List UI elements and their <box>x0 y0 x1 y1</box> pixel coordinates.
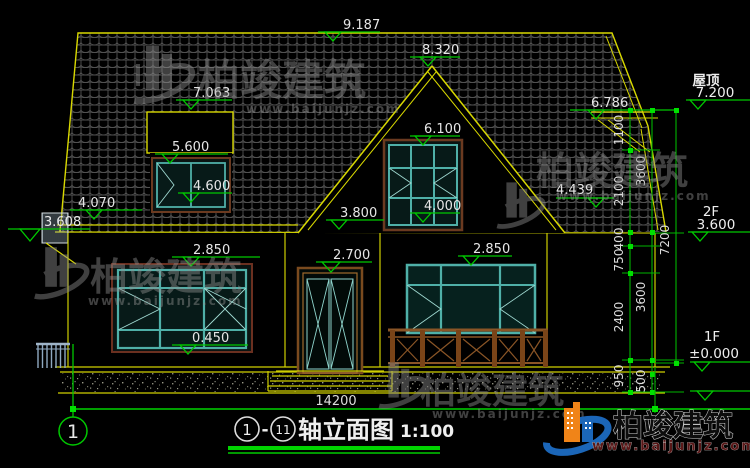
elevation-value: 3.608 <box>44 215 81 230</box>
dim-right-middle-1: 3600 <box>634 282 648 313</box>
level-floor2: 2F 3.600 <box>688 204 750 241</box>
dim-right-middle-2: 500 <box>634 370 648 393</box>
level-roof: 屋顶 7.200 <box>686 73 750 109</box>
elevation-value: 2.850 <box>473 242 510 257</box>
elevation-marker-right-window-top: 2.850 <box>458 242 512 265</box>
level-base <box>690 391 750 400</box>
watermark-brand: 柏竣建筑 <box>420 371 564 412</box>
title-separator: - <box>261 420 268 440</box>
cad-elevation-drawing: 9.187 8.320 7.063 5.600 4.600 4.070 <box>0 0 750 468</box>
watermark-brand: 柏竣建筑 <box>90 255 242 299</box>
watermark-brand: 柏竣建筑 <box>198 56 366 105</box>
watermark-url: www.baijunjz.com <box>88 294 243 308</box>
watermark-brand: 柏竣建筑 <box>536 149 688 193</box>
elevation-value: 9.187 <box>343 18 380 33</box>
left-stair-railing <box>36 344 70 368</box>
drawing-canvas: 9.187 8.320 7.063 5.600 4.600 4.070 <box>0 0 750 468</box>
elevation-value: 4.600 <box>193 179 230 194</box>
overall-width-dim: 14200 <box>315 394 356 409</box>
level-markers: 屋顶 7.200 2F 3.600 1F ±0.000 <box>686 73 750 400</box>
elevation-value: 8.320 <box>422 43 459 58</box>
watermark-url: www.baijunjz.com <box>432 407 587 421</box>
dim-right-inner-4: 2400 <box>612 302 626 333</box>
level-value: 7.200 <box>696 85 735 101</box>
watermark-bottom: 柏竣建筑 www.baijunjz.com <box>371 362 587 421</box>
level-label: 1F <box>704 329 720 345</box>
dim-right-inner-5: 950 <box>612 365 626 388</box>
watermark-url: www.baijunjz.com <box>556 189 711 203</box>
elevation-value: 4.070 <box>78 196 115 211</box>
title-scale: 1:100 <box>400 422 454 442</box>
elevation-value: 6.786 <box>591 96 628 111</box>
level-value: 3.600 <box>697 217 736 233</box>
title-axis-end: 11 <box>275 423 290 437</box>
elevation-value: 3.800 <box>340 206 377 221</box>
level-floor1: 1F ±0.000 <box>689 329 750 371</box>
drawing-title: 1 - 11 轴立面图 1:100 <box>228 416 454 454</box>
dormer <box>147 112 233 213</box>
right-window <box>407 265 535 333</box>
dim-right-inner-3: 750 <box>612 249 626 272</box>
title-text: 轴立面图 <box>298 416 394 444</box>
watermark-url: www.baijunjz.com <box>246 102 401 116</box>
level-value: ±0.000 <box>689 346 739 362</box>
watermark-left: 柏竣建筑 www.baijunjz.com <box>25 247 242 308</box>
veranda-railing <box>388 330 548 367</box>
elevation-value: 4.000 <box>424 199 461 214</box>
brand-logo: 柏竣建筑 www.baijunjz.com <box>542 402 750 459</box>
elevation-value: 0.450 <box>192 331 229 346</box>
dim-right-outer-0: 7200 <box>658 225 672 256</box>
dim-right-inner-2: 400 <box>612 228 626 251</box>
attic-window <box>384 140 462 230</box>
title-axis-start: 1 <box>242 421 252 439</box>
elevation-value: 5.600 <box>172 140 209 155</box>
elevation-value: 6.100 <box>424 122 461 137</box>
elevation-value: 2.700 <box>333 248 370 263</box>
axis-bubble: 1 <box>59 417 87 445</box>
dim-right-inner-0: 1100 <box>612 115 626 146</box>
axis-bubble-number: 1 <box>67 421 79 443</box>
brand-logo-url: www.baijunjz.com <box>592 439 750 454</box>
entrance-door <box>298 268 362 373</box>
